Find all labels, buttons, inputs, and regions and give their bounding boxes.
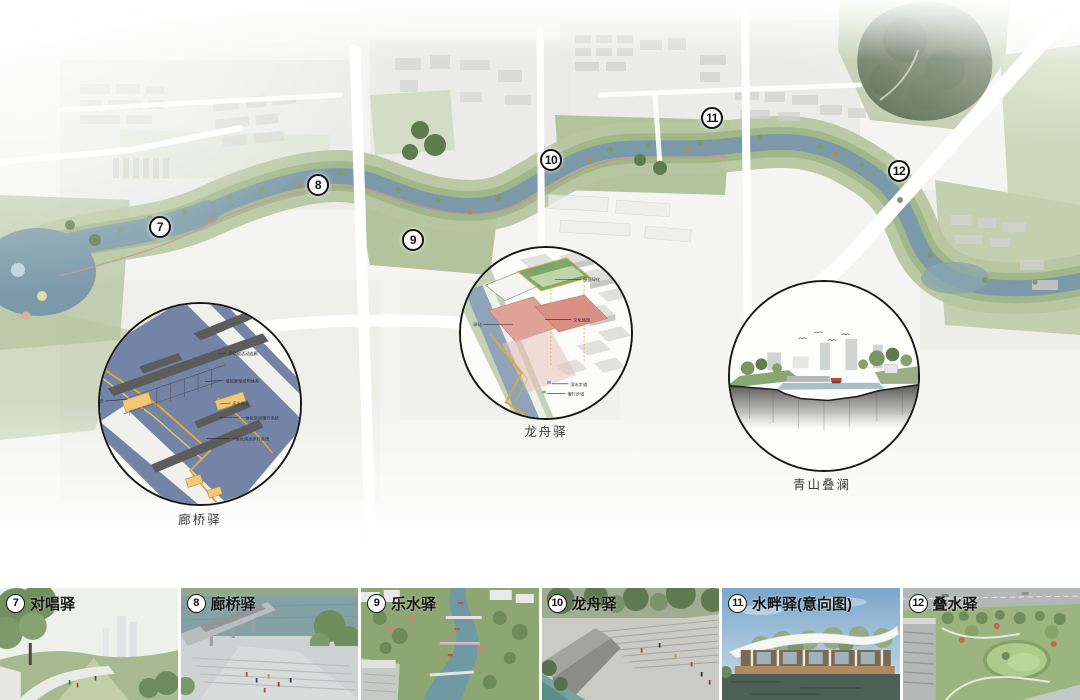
annotation-label: 一体化滨水步行系统 — [231, 435, 270, 442]
callout-langqiao-label: 廊桥驿 — [178, 509, 222, 528]
thumbnail-11-number-badge: 11 — [728, 594, 747, 613]
thumbnail-12: 12 叠水驿 — [903, 588, 1080, 700]
annotation-label: 换乘平台 — [100, 397, 104, 404]
thumbnail-9-label: 9 乐水驿 — [367, 593, 436, 614]
callout-longzhou-circle: 屋顶绿化文化场馆驿站滨水步道慢行步道 — [459, 246, 633, 420]
thumbnail-7-number-badge: 7 — [6, 594, 25, 613]
callout-langqiao-circle: 多功能活动连廊低碳廊架结构体系换乘平台乐水驿站一体化空间慢行系统一体化滨水步行系… — [98, 302, 302, 506]
annotation-label: 驿站 — [473, 321, 481, 328]
thumbnail-9-number-badge: 9 — [367, 594, 386, 613]
thumbnail-11: 11 水畔驿(意向图) — [722, 588, 900, 700]
callout-longzhou-diagram: 屋顶绿化文化场馆驿站滨水步道慢行步道 — [461, 248, 631, 418]
map-marker-8: 8 — [307, 174, 329, 196]
thumbnail-9-name: 乐水驿 — [391, 593, 436, 614]
map-marker-7: 7 — [149, 216, 171, 238]
callout-qingshan-section — [730, 282, 918, 470]
annotation-label: 乐水驿站 — [232, 400, 250, 407]
thumbnail-strip: 7 对唱驿 — [0, 588, 1080, 700]
annotation-label: 低碳廊架结构体系 — [225, 377, 259, 384]
annotation-label: 屋顶绿化 — [583, 276, 601, 283]
thumbnail-8-name: 廊桥驿 — [211, 593, 256, 614]
thumbnail-10: 10 龙舟驿 — [542, 588, 720, 700]
annotation-label: 文化场馆 — [573, 316, 590, 323]
thumbnail-8-label: 8 廊桥驿 — [187, 593, 256, 614]
callout-longzhou-label: 龙舟驿 — [524, 421, 568, 440]
map-marker-9: 9 — [402, 229, 424, 251]
thumbnail-11-label: 11 水畔驿(意向图) — [728, 593, 852, 614]
thumbnail-8-number-badge: 8 — [187, 594, 206, 613]
thumbnail-10-name: 龙舟驿 — [572, 593, 617, 614]
thumbnail-7: 7 对唱驿 — [0, 588, 178, 700]
masterplan-poster: 789101112 — [0, 0, 1080, 700]
annotation-label: 滨水步道 — [570, 381, 588, 388]
annotation-label: 多功能活动连廊 — [228, 350, 257, 357]
annotation-label: 慢行步道 — [567, 391, 585, 398]
map-marker-10: 10 — [540, 149, 562, 171]
thumbnail-12-name: 叠水驿 — [933, 593, 978, 614]
callout-qingshan-circle — [728, 280, 920, 472]
thumbnail-12-label: 12 叠水驿 — [909, 593, 978, 614]
map-marker-12: 12 — [888, 160, 910, 182]
map-marker-11: 11 — [701, 107, 723, 129]
thumbnail-10-label: 10 龙舟驿 — [548, 593, 617, 614]
thumbnail-9: 9 乐水驿 — [361, 588, 539, 700]
callout-qingshan-label: 青山叠澜 — [793, 474, 851, 493]
thumbnail-11-name: 水畔驿(意向图) — [752, 593, 852, 614]
thumbnail-12-number-badge: 12 — [909, 594, 928, 613]
thumbnail-7-label: 7 对唱驿 — [6, 593, 75, 614]
thumbnail-7-name: 对唱驿 — [30, 593, 75, 614]
callout-langqiao-diagram: 多功能活动连廊低碳廊架结构体系换乘平台乐水驿站一体化空间慢行系统一体化滨水步行系… — [100, 304, 300, 504]
thumbnail-10-number-badge: 10 — [548, 594, 567, 613]
thumbnail-8: 8 廊桥驿 — [181, 588, 359, 700]
annotation-label: 一体化空间慢行系统 — [241, 415, 280, 422]
